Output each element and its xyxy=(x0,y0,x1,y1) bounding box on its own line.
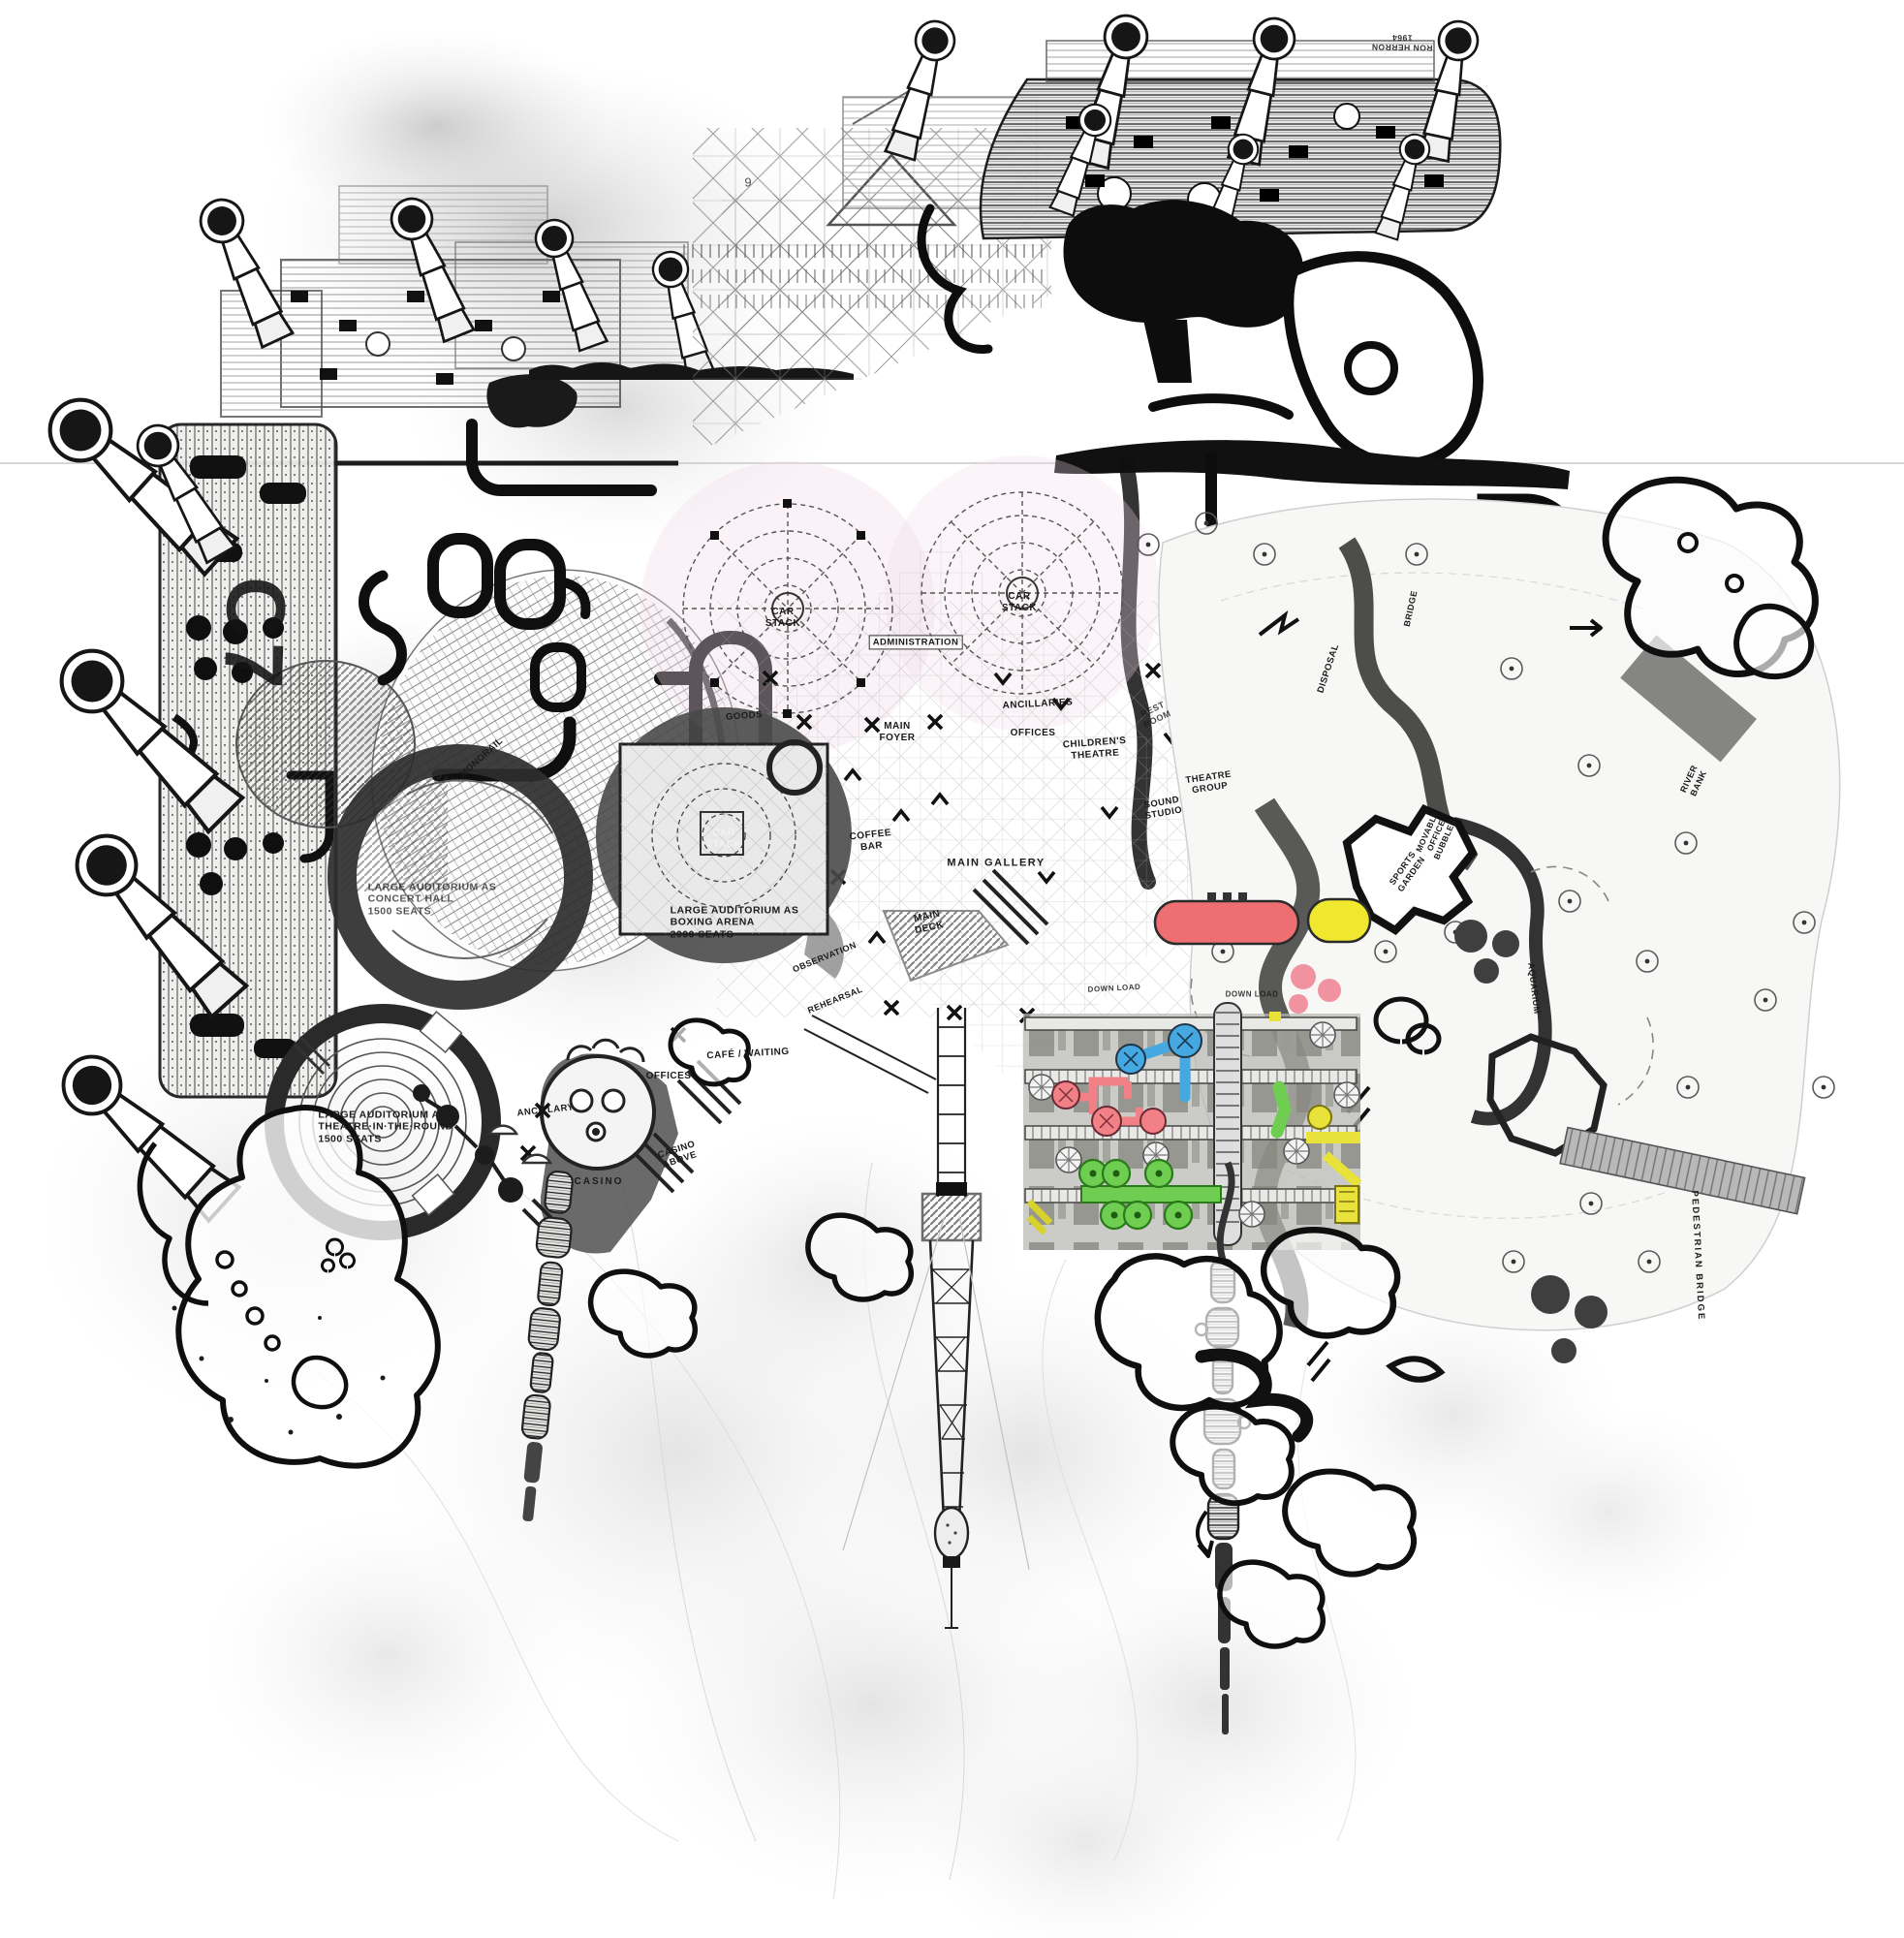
pink-pod xyxy=(1291,964,1316,989)
red-capsule xyxy=(1155,892,1298,944)
pink-pod xyxy=(1289,994,1308,1014)
signature-name: RON HERRON xyxy=(1371,42,1432,52)
yellow-bit xyxy=(1269,1012,1281,1021)
yellow-capsule xyxy=(1308,899,1370,942)
signature: RON HERRON 1964 xyxy=(1371,32,1432,52)
drawing-canvas: RON HERRON 1964 9 C7 CAR STACK CAR STACK… xyxy=(0,0,1904,1938)
plan-collage-svg xyxy=(0,0,1904,1938)
sheet-mark: 9 xyxy=(744,175,751,190)
grid-reference: C7 xyxy=(203,575,303,694)
pink-pod xyxy=(1318,979,1341,1002)
green-pipe xyxy=(1277,1087,1285,1132)
